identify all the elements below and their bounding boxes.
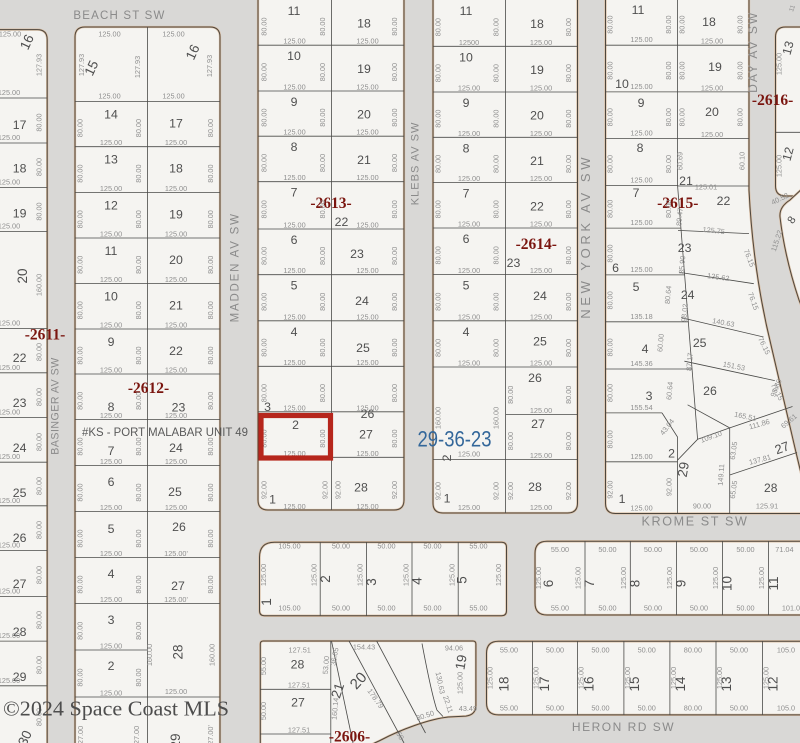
- svg-text:80.00: 80.00: [564, 200, 573, 218]
- svg-text:125.00: 125.00: [0, 676, 20, 685]
- svg-text:7: 7: [291, 186, 298, 200]
- svg-text:18: 18: [357, 17, 371, 31]
- svg-text:105.00: 105.00: [278, 542, 300, 551]
- svg-text:125.01: 125.01: [695, 183, 717, 192]
- svg-text:80.00: 80.00: [35, 343, 44, 361]
- svg-text:26: 26: [703, 384, 717, 398]
- svg-text:89.47: 89.47: [674, 207, 685, 226]
- svg-text:11: 11: [766, 576, 781, 590]
- svg-text:-2606-: -2606-: [329, 729, 370, 743]
- svg-text:2: 2: [292, 418, 299, 432]
- svg-text:8: 8: [628, 580, 643, 588]
- svg-text:125.00: 125.00: [0, 496, 20, 505]
- svg-text:50.00: 50.00: [546, 704, 564, 713]
- svg-text:7: 7: [633, 186, 640, 200]
- svg-text:105.00: 105.00: [278, 604, 300, 613]
- svg-text:21: 21: [169, 299, 183, 313]
- svg-text:80.00: 80.00: [492, 110, 501, 128]
- svg-text:7: 7: [108, 444, 115, 458]
- svg-text:125.00: 125.00: [165, 138, 187, 147]
- svg-text:80.00: 80.00: [736, 108, 745, 126]
- svg-text:80.00: 80.00: [134, 575, 143, 593]
- svg-text:25: 25: [533, 335, 547, 349]
- svg-text:125.00: 125.00: [458, 129, 480, 138]
- svg-text:80.00: 80.00: [318, 293, 327, 311]
- svg-text:80.00: 80.00: [664, 200, 673, 218]
- svg-text:125.00: 125.00: [165, 411, 187, 420]
- svg-text:80.00: 80.00: [206, 164, 215, 182]
- svg-text:80.00: 80.00: [390, 247, 399, 265]
- svg-text:80.00: 80.00: [506, 386, 515, 404]
- svg-text:28: 28: [764, 481, 778, 495]
- svg-text:125.00: 125.00: [162, 92, 184, 101]
- svg-text:125.00: 125.00: [630, 504, 652, 513]
- svg-text:92.00: 92.00: [564, 482, 573, 500]
- svg-text:2: 2: [668, 447, 675, 461]
- svg-text:125.00: 125.00: [283, 128, 305, 137]
- svg-text:80.00: 80.00: [664, 108, 673, 126]
- svg-text:19: 19: [530, 63, 544, 77]
- svg-text:80.00: 80.00: [678, 15, 687, 33]
- svg-text:127.51: 127.51: [289, 646, 311, 655]
- svg-text:80.00: 80.00: [76, 164, 85, 182]
- svg-text:28: 28: [528, 480, 542, 494]
- svg-text:125.00: 125.00: [162, 30, 184, 39]
- svg-text:125.00: 125.00: [715, 667, 724, 689]
- svg-text:50.00: 50.00: [377, 604, 395, 613]
- svg-text:125.00: 125.00: [100, 457, 122, 466]
- svg-text:80.00: 80.00: [564, 246, 573, 264]
- svg-text:125.00: 125.00: [0, 30, 21, 39]
- svg-text:155.54: 155.54: [630, 403, 652, 412]
- svg-text:125.00: 125.00: [100, 366, 122, 375]
- svg-text:2: 2: [318, 575, 333, 583]
- svg-text:125.00: 125.00: [165, 230, 187, 239]
- svg-text:10: 10: [615, 77, 629, 91]
- svg-text:55.00: 55.00: [500, 704, 518, 713]
- svg-text:125.00: 125.00: [530, 359, 552, 368]
- svg-text:80.00: 80.00: [318, 338, 327, 356]
- svg-text:160.00: 160.00: [145, 644, 154, 666]
- svg-text:125.00: 125.00: [0, 631, 20, 640]
- svg-text:9: 9: [291, 95, 298, 109]
- svg-text:5: 5: [455, 576, 470, 584]
- svg-text:19: 19: [357, 62, 371, 76]
- svg-text:22: 22: [335, 215, 349, 229]
- svg-text:160.00: 160.00: [492, 407, 501, 429]
- svg-text:80.00: 80.00: [390, 338, 399, 356]
- svg-text:27: 27: [531, 417, 545, 431]
- svg-text:43.49: 43.49: [459, 704, 477, 713]
- svg-text:80.00: 80.00: [606, 155, 615, 173]
- svg-text:80.00: 80.00: [260, 108, 269, 126]
- svg-text:80.00: 80.00: [318, 63, 327, 81]
- svg-text:125.00: 125.00: [530, 312, 552, 321]
- svg-text:80.00: 80.00: [35, 388, 44, 406]
- svg-text:80.00: 80.00: [260, 154, 269, 172]
- svg-text:4: 4: [410, 577, 425, 585]
- svg-text:80.00: 80.00: [684, 645, 702, 654]
- svg-text:80.00: 80.00: [678, 61, 687, 79]
- svg-text:125.00: 125.00: [0, 178, 20, 187]
- svg-text:127.00: 127.00: [76, 726, 85, 743]
- svg-text:80.00: 80.00: [206, 483, 215, 501]
- svg-text:5: 5: [633, 280, 640, 294]
- svg-text:9: 9: [638, 96, 645, 110]
- svg-text:80.00: 80.00: [606, 291, 615, 309]
- svg-text:3: 3: [364, 578, 379, 586]
- svg-text:6: 6: [291, 233, 298, 247]
- svg-text:20: 20: [357, 108, 371, 122]
- svg-text:13: 13: [104, 153, 118, 167]
- svg-text:125.00: 125.00: [100, 642, 122, 651]
- svg-text:11: 11: [288, 4, 301, 18]
- svg-text:28: 28: [171, 644, 186, 659]
- svg-text:92.00: 92.00: [334, 481, 343, 499]
- svg-text:80.00: 80.00: [506, 432, 515, 450]
- svg-text:80.00: 80.00: [434, 293, 443, 311]
- svg-text:125.00: 125.00: [165, 457, 187, 466]
- svg-text:-2611-: -2611-: [25, 327, 65, 344]
- svg-text:125.00: 125.00: [356, 221, 378, 230]
- svg-text:125.00: 125.00: [630, 218, 652, 227]
- svg-text:125.00: 125.00: [100, 230, 122, 239]
- svg-text:125.00: 125.00: [0, 363, 20, 372]
- svg-text:80.00: 80.00: [434, 200, 443, 218]
- svg-text:27: 27: [291, 696, 305, 710]
- svg-text:10: 10: [287, 49, 301, 63]
- svg-text:80.00: 80.00: [564, 293, 573, 311]
- svg-text:4: 4: [108, 567, 115, 581]
- svg-text:BASINGER AV SW: BASINGER AV SW: [50, 357, 62, 454]
- svg-text:50.00: 50.00: [546, 645, 564, 654]
- svg-text:9: 9: [108, 335, 115, 349]
- svg-text:125.00: 125.00: [458, 503, 480, 512]
- svg-text:80.00: 80.00: [35, 611, 44, 629]
- svg-text:18: 18: [530, 17, 544, 31]
- svg-text:160.00: 160.00: [35, 274, 44, 296]
- svg-text:60.64: 60.64: [664, 381, 675, 400]
- svg-text:125.00: 125.00: [100, 549, 122, 558]
- svg-text:80.00: 80.00: [664, 61, 673, 79]
- svg-text:80.00: 80.00: [76, 210, 85, 228]
- svg-text:71.04: 71.04: [775, 545, 793, 554]
- svg-text:127.00': 127.00': [206, 725, 215, 743]
- svg-text:125.00: 125.00: [100, 503, 122, 512]
- svg-text:50.00: 50.00: [591, 704, 609, 713]
- svg-text:6: 6: [108, 475, 115, 489]
- svg-text:80.00: 80.00: [736, 15, 745, 33]
- svg-text:19: 19: [169, 208, 183, 222]
- svg-text:80.00: 80.00: [390, 293, 399, 311]
- svg-text:50.00: 50.00: [638, 645, 656, 654]
- svg-text:125.00: 125.00: [0, 133, 20, 142]
- svg-text:11: 11: [105, 244, 118, 258]
- svg-text:92.00: 92.00: [390, 481, 399, 499]
- svg-text:80.00: 80.00: [390, 17, 399, 35]
- svg-text:80.00: 80.00: [434, 18, 443, 36]
- svg-text:55.00: 55.00: [500, 645, 518, 654]
- svg-text:80.00: 80.00: [606, 108, 615, 126]
- svg-text:80.00: 80.00: [206, 529, 215, 547]
- svg-text:125.00: 125.00: [701, 37, 723, 46]
- svg-text:80.00: 80.00: [206, 119, 215, 137]
- svg-text:22: 22: [530, 199, 544, 213]
- svg-text:10: 10: [720, 576, 735, 591]
- svg-text:94.06: 94.06: [445, 644, 463, 653]
- svg-text:80.00: 80.00: [606, 15, 615, 33]
- svg-text:5: 5: [291, 279, 298, 293]
- svg-text:50.00: 50.00: [644, 545, 662, 554]
- svg-text:24: 24: [681, 288, 695, 302]
- svg-text:80.00: 80.00: [35, 477, 44, 495]
- svg-text:125.00: 125.00: [757, 567, 766, 589]
- svg-text:149.11: 149.11: [716, 464, 726, 486]
- svg-text:1: 1: [444, 492, 451, 506]
- svg-text:80.00: 80.00: [390, 63, 399, 81]
- svg-text:125.00: 125.00: [630, 452, 652, 461]
- svg-text:80.00: 80.00: [564, 18, 573, 36]
- svg-text:80.00: 80.00: [318, 17, 327, 35]
- svg-text:80.00: 80.00: [260, 200, 269, 218]
- svg-text:80.00: 80.00: [492, 339, 501, 357]
- svg-text:24: 24: [355, 294, 369, 308]
- svg-text:125.00: 125.00: [630, 35, 652, 44]
- svg-text:125.00: 125.00: [623, 667, 632, 689]
- svg-text:125.00: 125.00: [669, 667, 678, 689]
- svg-text:125.00: 125.00: [356, 449, 378, 458]
- svg-text:125.00: 125.00: [165, 275, 187, 284]
- svg-text:80.00: 80.00: [76, 668, 85, 686]
- svg-text:125.00: 125.00: [530, 129, 552, 138]
- svg-text:8: 8: [291, 140, 298, 154]
- svg-text:53.00: 53.00: [321, 656, 332, 675]
- svg-text:19: 19: [13, 207, 27, 221]
- svg-text:105.0: 105.0: [777, 704, 795, 713]
- svg-text:125.00: 125.00: [701, 83, 723, 92]
- svg-text:3: 3: [108, 613, 115, 627]
- svg-text:20: 20: [169, 253, 183, 267]
- svg-text:87.17: 87.17: [684, 352, 695, 371]
- svg-text:80.00: 80.00: [76, 622, 85, 640]
- svg-text:92.00: 92.00: [506, 482, 515, 500]
- svg-text:8: 8: [463, 141, 470, 155]
- svg-text:80.00: 80.00: [134, 668, 143, 686]
- svg-text:80.00: 80.00: [318, 429, 327, 447]
- svg-text:80.00: 80.00: [76, 392, 85, 410]
- svg-text:125.00: 125.00: [100, 184, 122, 193]
- svg-text:125.00: 125.00: [165, 184, 187, 193]
- svg-text:125.00: 125.00: [665, 567, 674, 589]
- svg-text:125.00: 125.00: [630, 82, 652, 91]
- svg-text:#KS - PORT MALABAR UNIT 49: #KS - PORT MALABAR UNIT 49: [82, 425, 248, 439]
- svg-text:125.00: 125.00: [356, 128, 378, 137]
- svg-text:6: 6: [463, 232, 470, 246]
- svg-text:50.00: 50.00: [591, 645, 609, 654]
- svg-text:10: 10: [459, 50, 473, 64]
- svg-text:80.00: 80.00: [206, 346, 215, 364]
- svg-text:10: 10: [104, 290, 118, 304]
- svg-text:127.51: 127.51: [288, 726, 310, 735]
- svg-text:80.00: 80.00: [318, 247, 327, 265]
- svg-text:80.00: 80.00: [134, 392, 143, 410]
- svg-text:21: 21: [530, 154, 544, 168]
- svg-text:80.00: 80.00: [318, 384, 327, 402]
- svg-text:125.00: 125.00: [577, 667, 586, 689]
- svg-text:DAY AV SW: DAY AV SW: [746, 11, 760, 93]
- svg-text:50.00: 50.00: [423, 542, 441, 551]
- svg-text:145.36: 145.36: [630, 359, 652, 368]
- svg-text:80.00: 80.00: [76, 256, 85, 274]
- svg-text:50.00: 50.00: [690, 604, 708, 613]
- svg-text:80.00: 80.00: [606, 384, 615, 402]
- svg-text:6: 6: [541, 580, 556, 588]
- svg-text:80.00: 80.00: [206, 210, 215, 228]
- svg-text:125.00: 125.00: [458, 266, 480, 275]
- svg-text:20: 20: [530, 109, 544, 123]
- svg-text:80.00: 80.00: [606, 200, 615, 218]
- svg-text:60.10: 60.10: [738, 152, 747, 170]
- svg-text:80.00: 80.00: [134, 210, 143, 228]
- svg-text:125.00: 125.00: [283, 312, 305, 321]
- svg-text:25: 25: [356, 341, 370, 355]
- svg-text:127.00: 127.00: [132, 726, 141, 743]
- svg-text:80.00: 80.00: [134, 164, 143, 182]
- svg-text:80.00: 80.00: [434, 339, 443, 357]
- svg-text:80.00: 80.00: [564, 64, 573, 82]
- svg-text:23: 23: [350, 247, 364, 261]
- svg-text:125.00: 125.00: [356, 403, 378, 412]
- svg-text:80.00: 80.00: [76, 483, 85, 501]
- svg-text:125.00: 125.00: [534, 567, 543, 589]
- svg-text:80.00: 80.00: [434, 155, 443, 173]
- svg-text:80.00: 80.00: [76, 346, 85, 364]
- svg-text:24: 24: [533, 289, 547, 303]
- svg-text:50.00: 50.00: [690, 545, 708, 554]
- svg-text:80.00: 80.00: [134, 437, 143, 455]
- svg-text:1: 1: [259, 598, 274, 606]
- svg-text:125.00: 125.00: [259, 564, 268, 586]
- svg-text:125.00: 125.00: [530, 38, 552, 47]
- svg-text:105.0: 105.0: [777, 645, 795, 654]
- svg-text:MADDEN AV SW: MADDEN AV SW: [230, 212, 242, 322]
- svg-text:26: 26: [528, 371, 542, 385]
- svg-text:20: 20: [15, 268, 30, 283]
- svg-text:80.00: 80.00: [390, 154, 399, 172]
- svg-text:125.00: 125.00: [761, 667, 770, 689]
- svg-text:125.00: 125.00: [531, 667, 540, 689]
- svg-text:125.00: 125.00: [283, 173, 305, 182]
- svg-text:18: 18: [702, 15, 716, 29]
- svg-text:125.00: 125.00: [630, 265, 652, 274]
- svg-text:127.93: 127.93: [35, 54, 44, 76]
- svg-text:80.00: 80.00: [664, 15, 673, 33]
- svg-text:92.00: 92.00: [260, 481, 269, 499]
- svg-text:80.00: 80.00: [260, 293, 269, 311]
- svg-text:125.00: 125.00: [100, 275, 122, 284]
- svg-text:50.00: 50.00: [598, 604, 616, 613]
- svg-text:80.00: 80.00: [134, 256, 143, 274]
- svg-text:127.93: 127.93: [77, 54, 86, 76]
- svg-text:80.64: 80.64: [663, 285, 674, 304]
- svg-text:8: 8: [637, 141, 644, 155]
- svg-text:50.00: 50.00: [730, 645, 748, 654]
- svg-text:80.00: 80.00: [35, 113, 44, 131]
- svg-text:125.00: 125.00: [530, 406, 552, 415]
- svg-text:80.00: 80.00: [206, 256, 215, 274]
- svg-text:©2024 Space Coast MLS: ©2024 Space Coast MLS: [3, 697, 229, 721]
- svg-text:17: 17: [169, 117, 183, 131]
- svg-text:125.00: 125.00: [711, 567, 720, 589]
- svg-text:125.00: 125.00: [356, 564, 365, 586]
- svg-text:80.00: 80.00: [35, 433, 44, 451]
- svg-text:5: 5: [463, 279, 470, 293]
- svg-text:80.00: 80.00: [390, 384, 399, 402]
- svg-text:4: 4: [642, 342, 649, 356]
- svg-text:80.00: 80.00: [390, 200, 399, 218]
- svg-text:80.00: 80.00: [260, 384, 269, 402]
- svg-text:125.00: 125.00: [100, 595, 122, 604]
- svg-text:80.00: 80.00: [564, 110, 573, 128]
- svg-text:80.00: 80.00: [492, 155, 501, 173]
- svg-text:2: 2: [108, 659, 115, 673]
- svg-text:80.00: 80.00: [318, 108, 327, 126]
- svg-text:125.00: 125.00: [701, 130, 723, 139]
- svg-text:125.00': 125.00': [164, 549, 188, 558]
- svg-text:125.00: 125.00: [283, 266, 305, 275]
- svg-text:127.51: 127.51: [288, 681, 310, 690]
- svg-text:125.00: 125.00: [356, 266, 378, 275]
- svg-text:55.00: 55.00: [259, 657, 268, 675]
- svg-text:135.18: 135.18: [630, 312, 652, 321]
- svg-text:125.00: 125.00: [100, 138, 122, 147]
- svg-text:125.00: 125.00: [0, 452, 20, 461]
- svg-text:125.00: 125.00: [486, 667, 495, 689]
- svg-text:80.00: 80.00: [260, 63, 269, 81]
- svg-text:80.00: 80.00: [390, 429, 399, 447]
- svg-text:27: 27: [171, 579, 185, 593]
- svg-text:125.00: 125.00: [356, 312, 378, 321]
- svg-text:80.00: 80.00: [76, 301, 85, 319]
- svg-text:98.02: 98.02: [679, 303, 690, 322]
- svg-text:80.00: 80.00: [434, 110, 443, 128]
- svg-text:50.00: 50.00: [259, 702, 268, 720]
- svg-text:50.00: 50.00: [423, 604, 441, 613]
- svg-text:50.00: 50.00: [736, 545, 754, 554]
- svg-text:29-36-23: 29-36-23: [418, 427, 492, 452]
- svg-text:125.00: 125.00: [283, 403, 305, 412]
- svg-text:27: 27: [359, 428, 373, 442]
- svg-text:5: 5: [108, 522, 115, 536]
- svg-text:80.00: 80.00: [564, 155, 573, 173]
- svg-text:4: 4: [291, 325, 298, 339]
- svg-text:125.00: 125.00: [448, 564, 457, 586]
- svg-text:12500: 12500: [459, 38, 479, 47]
- svg-text:125.00: 125.00: [0, 541, 20, 550]
- svg-text:125.00: 125.00: [100, 321, 122, 330]
- svg-text:11: 11: [632, 3, 645, 17]
- svg-text:125.00: 125.00: [775, 155, 784, 177]
- svg-text:11: 11: [460, 4, 473, 18]
- svg-text:21: 21: [357, 153, 371, 167]
- svg-text:125.00: 125.00: [165, 321, 187, 330]
- svg-text:80.00: 80.00: [492, 64, 501, 82]
- svg-text:19: 19: [708, 60, 722, 74]
- svg-text:25: 25: [168, 485, 182, 499]
- svg-text:125.00: 125.00: [458, 359, 480, 368]
- svg-text:-2614-: -2614-: [516, 236, 557, 253]
- svg-text:80.00: 80.00: [606, 61, 615, 79]
